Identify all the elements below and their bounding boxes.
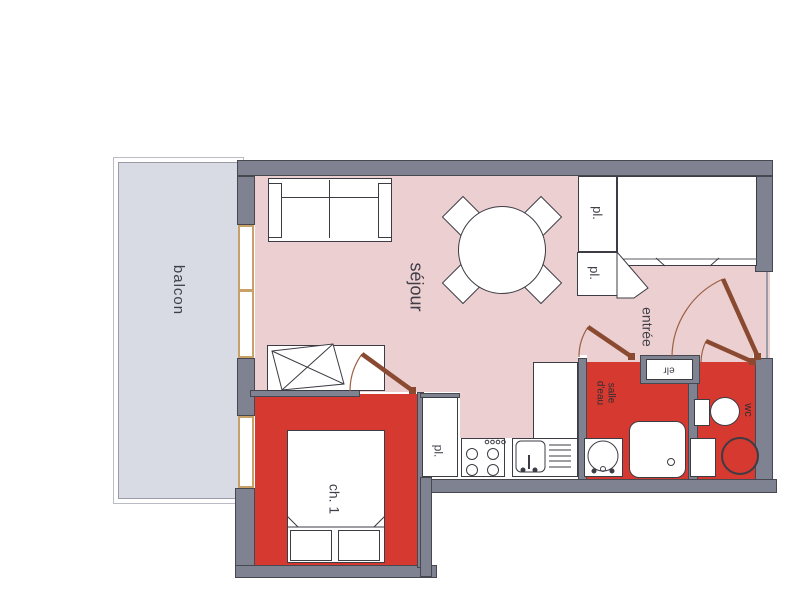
toilet-bowl	[710, 397, 740, 426]
wall-top	[237, 160, 773, 176]
wall-bottom-bedroom	[235, 565, 437, 578]
wall-bedroom-top	[250, 390, 360, 397]
water-heater	[721, 437, 759, 475]
sofa-arm-right	[378, 183, 392, 238]
wc-label: wc	[741, 403, 753, 416]
wall-kitchen-vertical	[420, 477, 432, 577]
wall-right-lower	[755, 358, 773, 493]
wall-left-b	[237, 358, 255, 416]
daybed	[267, 345, 385, 391]
closet-kitchen	[422, 397, 458, 477]
sink-unit	[512, 438, 578, 477]
wall-bottom-strip	[420, 479, 777, 493]
sofa	[268, 178, 392, 242]
shower-room-label-line2: d'eau	[595, 381, 606, 405]
closet-kitchen-label: pl.	[432, 445, 445, 458]
wall-niche-label: elr	[663, 364, 674, 375]
counter-column	[533, 362, 578, 439]
bedroom-label: ch. 1	[327, 484, 342, 514]
closet-hall-upper-label: pl.	[590, 206, 604, 220]
dining-table	[458, 206, 546, 294]
pillow-left	[290, 530, 332, 561]
wc-cabinet	[690, 438, 716, 477]
pillow-right	[338, 530, 380, 561]
entry-door-threshold	[766, 272, 768, 358]
shower-room-label-line1: salle	[605, 381, 616, 405]
floor-plan: balcon séjour entrée ch. 1 pl. pl. pl. w…	[0, 0, 800, 603]
window-bedroom	[238, 416, 254, 488]
shower-tray	[629, 421, 686, 478]
floor-strip-entry-door	[758, 272, 770, 358]
washbasin-unit	[584, 438, 623, 477]
sofa-back-line	[282, 197, 378, 198]
living-room-label: séjour	[407, 262, 426, 311]
wall-left-a	[237, 176, 255, 225]
toilet-tank	[694, 399, 710, 426]
closet-hall-lower-label: pl.	[587, 266, 601, 280]
wall-right-upper	[755, 176, 773, 272]
entry-label: entrée	[640, 307, 655, 347]
stove	[461, 438, 505, 477]
sofa-mid-line	[329, 180, 330, 238]
balcony-label: balcon	[170, 265, 186, 315]
bed-alcove	[617, 176, 757, 266]
balcony-floor	[118, 162, 239, 499]
window-living-mullion	[238, 289, 254, 292]
shower-room-label: salle d'eau	[595, 381, 616, 405]
sofa-arm-left	[268, 183, 282, 238]
